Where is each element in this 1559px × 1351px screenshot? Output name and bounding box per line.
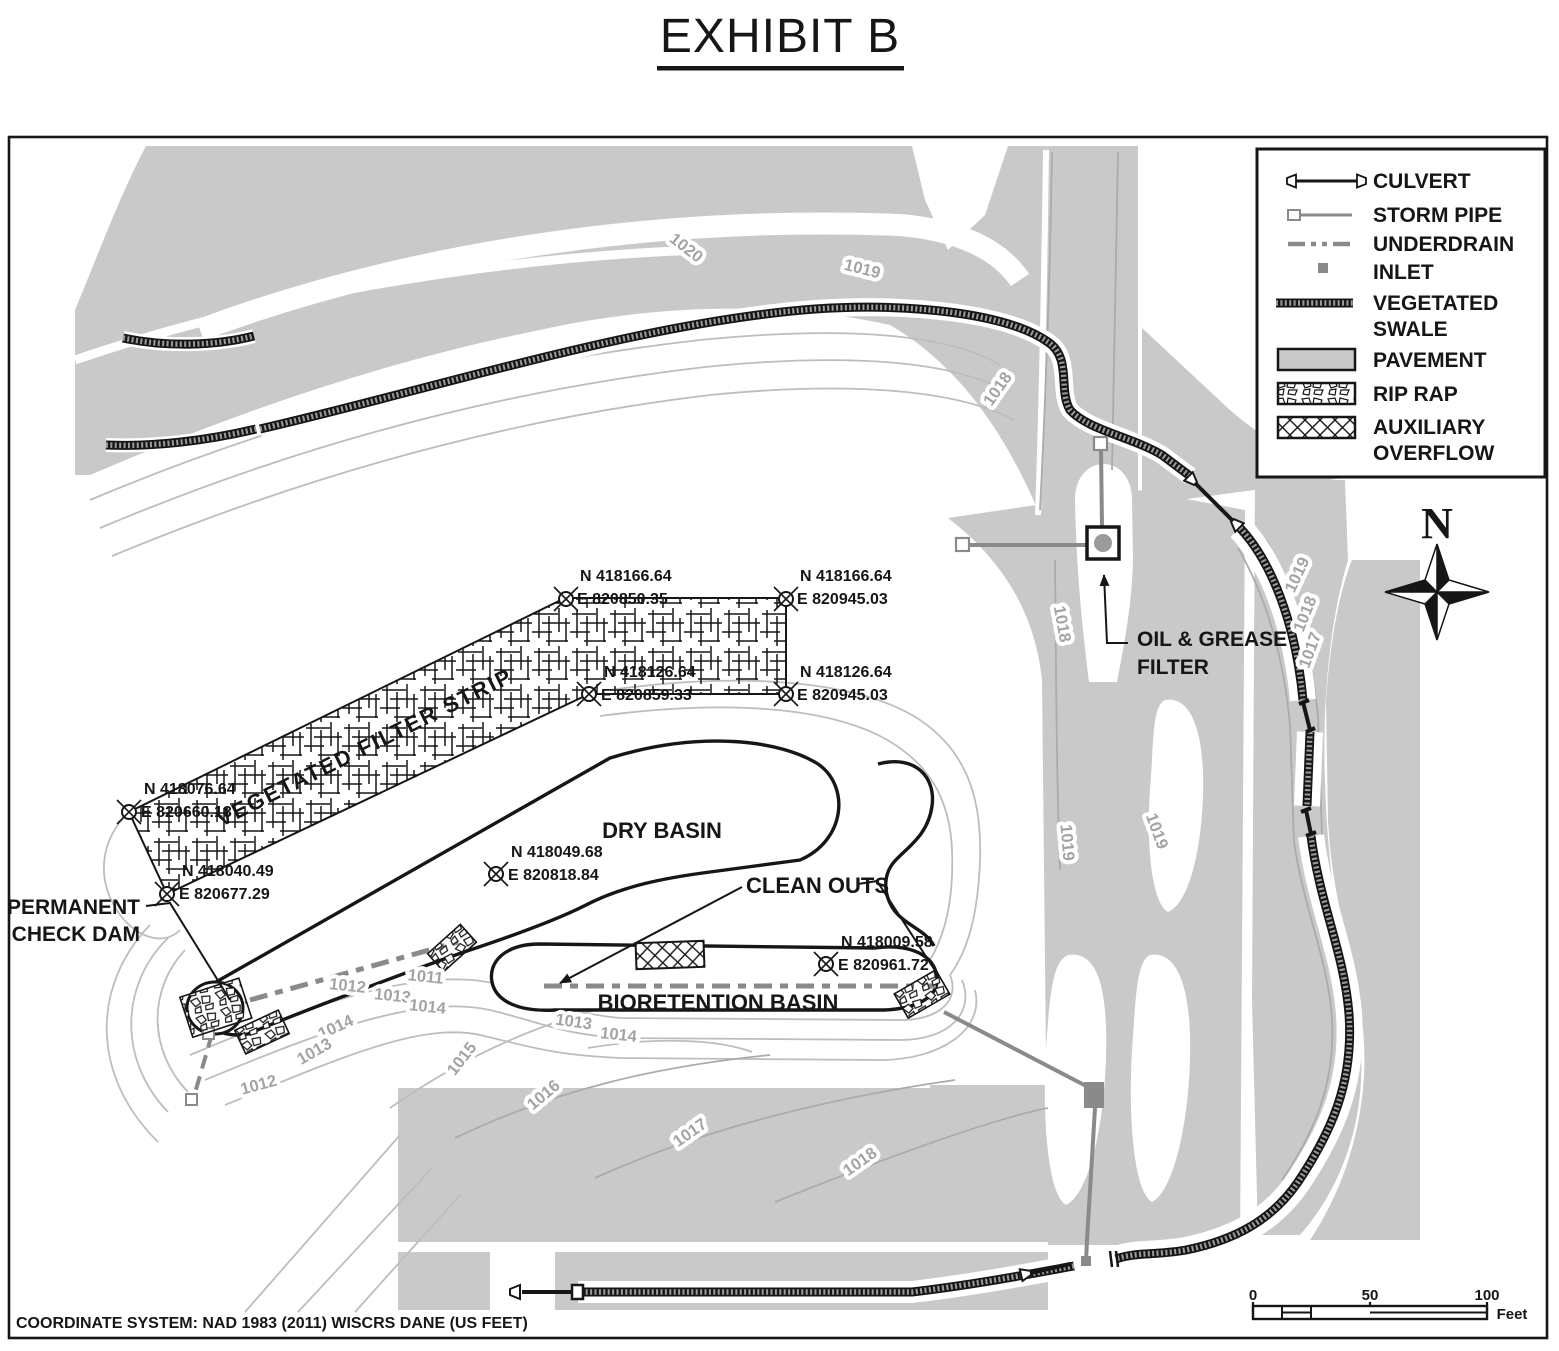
legend-symbol-auxiliary-overflow xyxy=(1278,417,1355,438)
inlet xyxy=(1084,1082,1104,1108)
legend-label-auxiliary-overflow-line2: OVERFLOW xyxy=(1373,442,1495,465)
legend-symbol-pavement xyxy=(1278,349,1355,370)
scale-tick-100: 100 xyxy=(1474,1287,1499,1304)
map-area: VEGETATED FILTER STRIP xyxy=(7,146,1420,1312)
contour-label: 1014 xyxy=(599,1024,638,1046)
survey-n: N 418126.64 xyxy=(604,664,696,681)
check-dam-label-line1: PERMANENT xyxy=(7,896,140,919)
title-block: EXHIBIT B xyxy=(657,10,904,71)
survey-n: N 418076.64 xyxy=(144,781,236,798)
oil-grease-filter-structure xyxy=(1087,527,1119,559)
survey-n: N 418166.64 xyxy=(800,568,892,585)
storm-pipe-flange xyxy=(956,538,969,551)
scale-tick-0: 0 xyxy=(1249,1287,1257,1304)
legend-label-auxiliary-overflow-line1: AUXILIARY xyxy=(1373,416,1485,439)
inlet xyxy=(1081,1256,1091,1266)
legend-label-vegetated-swale-line1: VEGETATED xyxy=(1373,292,1498,315)
survey-n: N 418126.64 xyxy=(800,664,892,681)
oil-grease-filter-label-line1: OIL & GREASE xyxy=(1137,628,1287,651)
legend-label-inlet: INLET xyxy=(1373,261,1434,284)
legend-label-culvert: CULVERT xyxy=(1373,170,1471,193)
dry-basin-label: DRY BASIN xyxy=(602,818,722,843)
east-lobe-outline xyxy=(878,762,934,946)
survey-e: E 820945.03 xyxy=(797,591,888,608)
contour-label: 1014 xyxy=(408,996,447,1018)
contour-label: 1012 xyxy=(239,1072,279,1099)
contour-label: 1019 xyxy=(1056,823,1077,861)
survey-e: E 820850.35 xyxy=(577,591,668,608)
contour-label: 1011 xyxy=(407,966,444,988)
pipe-end xyxy=(186,1094,197,1105)
survey-n: N 418166.64 xyxy=(580,568,672,585)
title-underline xyxy=(657,66,904,71)
legend-label-rip-rap: RIP RAP xyxy=(1373,383,1458,406)
legend: CULVERT STORM PIPE UNDERDRAIN INLET VEGE… xyxy=(1257,149,1545,477)
survey-e: E 820945.03 xyxy=(797,687,888,704)
clean-outs-label: CLEAN OUTS xyxy=(746,873,889,898)
north-arrow-label: N xyxy=(1421,499,1453,548)
exhibit-b-plan: EXHIBIT B xyxy=(0,0,1559,1351)
scale-tick-50: 50 xyxy=(1362,1287,1379,1304)
survey-e: E 820818.84 xyxy=(508,867,599,884)
scale-unit: Feet xyxy=(1497,1306,1528,1323)
legend-label-vegetated-swale-line2: SWALE xyxy=(1373,318,1448,341)
legend-symbol-rip-rap xyxy=(1278,383,1355,404)
scale-bar: 0 50 100 Feet xyxy=(1249,1287,1528,1323)
survey-e: E 820677.29 xyxy=(179,886,270,903)
survey-n: N 418009.58 xyxy=(841,934,933,951)
contour-label: 1015 xyxy=(444,1039,481,1079)
legend-label-pavement: PAVEMENT xyxy=(1373,349,1487,372)
survey-e: E 820660.18 xyxy=(141,804,232,821)
oil-grease-filter-label-line2: FILTER xyxy=(1137,656,1209,679)
contour-label: 1013 xyxy=(373,985,411,1007)
auxiliary-overflow-area xyxy=(636,941,705,969)
survey-e: E 820961.72 xyxy=(838,957,929,974)
survey-e: E 820859.33 xyxy=(601,687,692,704)
bioretention-basin-label: BIORETENTION BASIN xyxy=(598,990,839,1015)
survey-n: N 418049.68 xyxy=(511,844,603,861)
legend-symbol-inlet xyxy=(1318,263,1328,273)
legend-label-storm-pipe: STORM PIPE xyxy=(1373,204,1502,227)
survey-n: N 418040.49 xyxy=(182,863,274,880)
storm-pipe-flange xyxy=(1094,437,1107,450)
check-dam-label-line2: CHECK DAM xyxy=(12,923,140,946)
coordinate-system-note: COORDINATE SYSTEM: NAD 1983 (2011) WISCR… xyxy=(16,1315,528,1332)
contour-label: 1012 xyxy=(328,975,366,997)
legend-label-underdrain: UNDERDRAIN xyxy=(1373,233,1514,256)
culvert-end xyxy=(572,1285,583,1299)
page-title: EXHIBIT B xyxy=(660,10,900,63)
